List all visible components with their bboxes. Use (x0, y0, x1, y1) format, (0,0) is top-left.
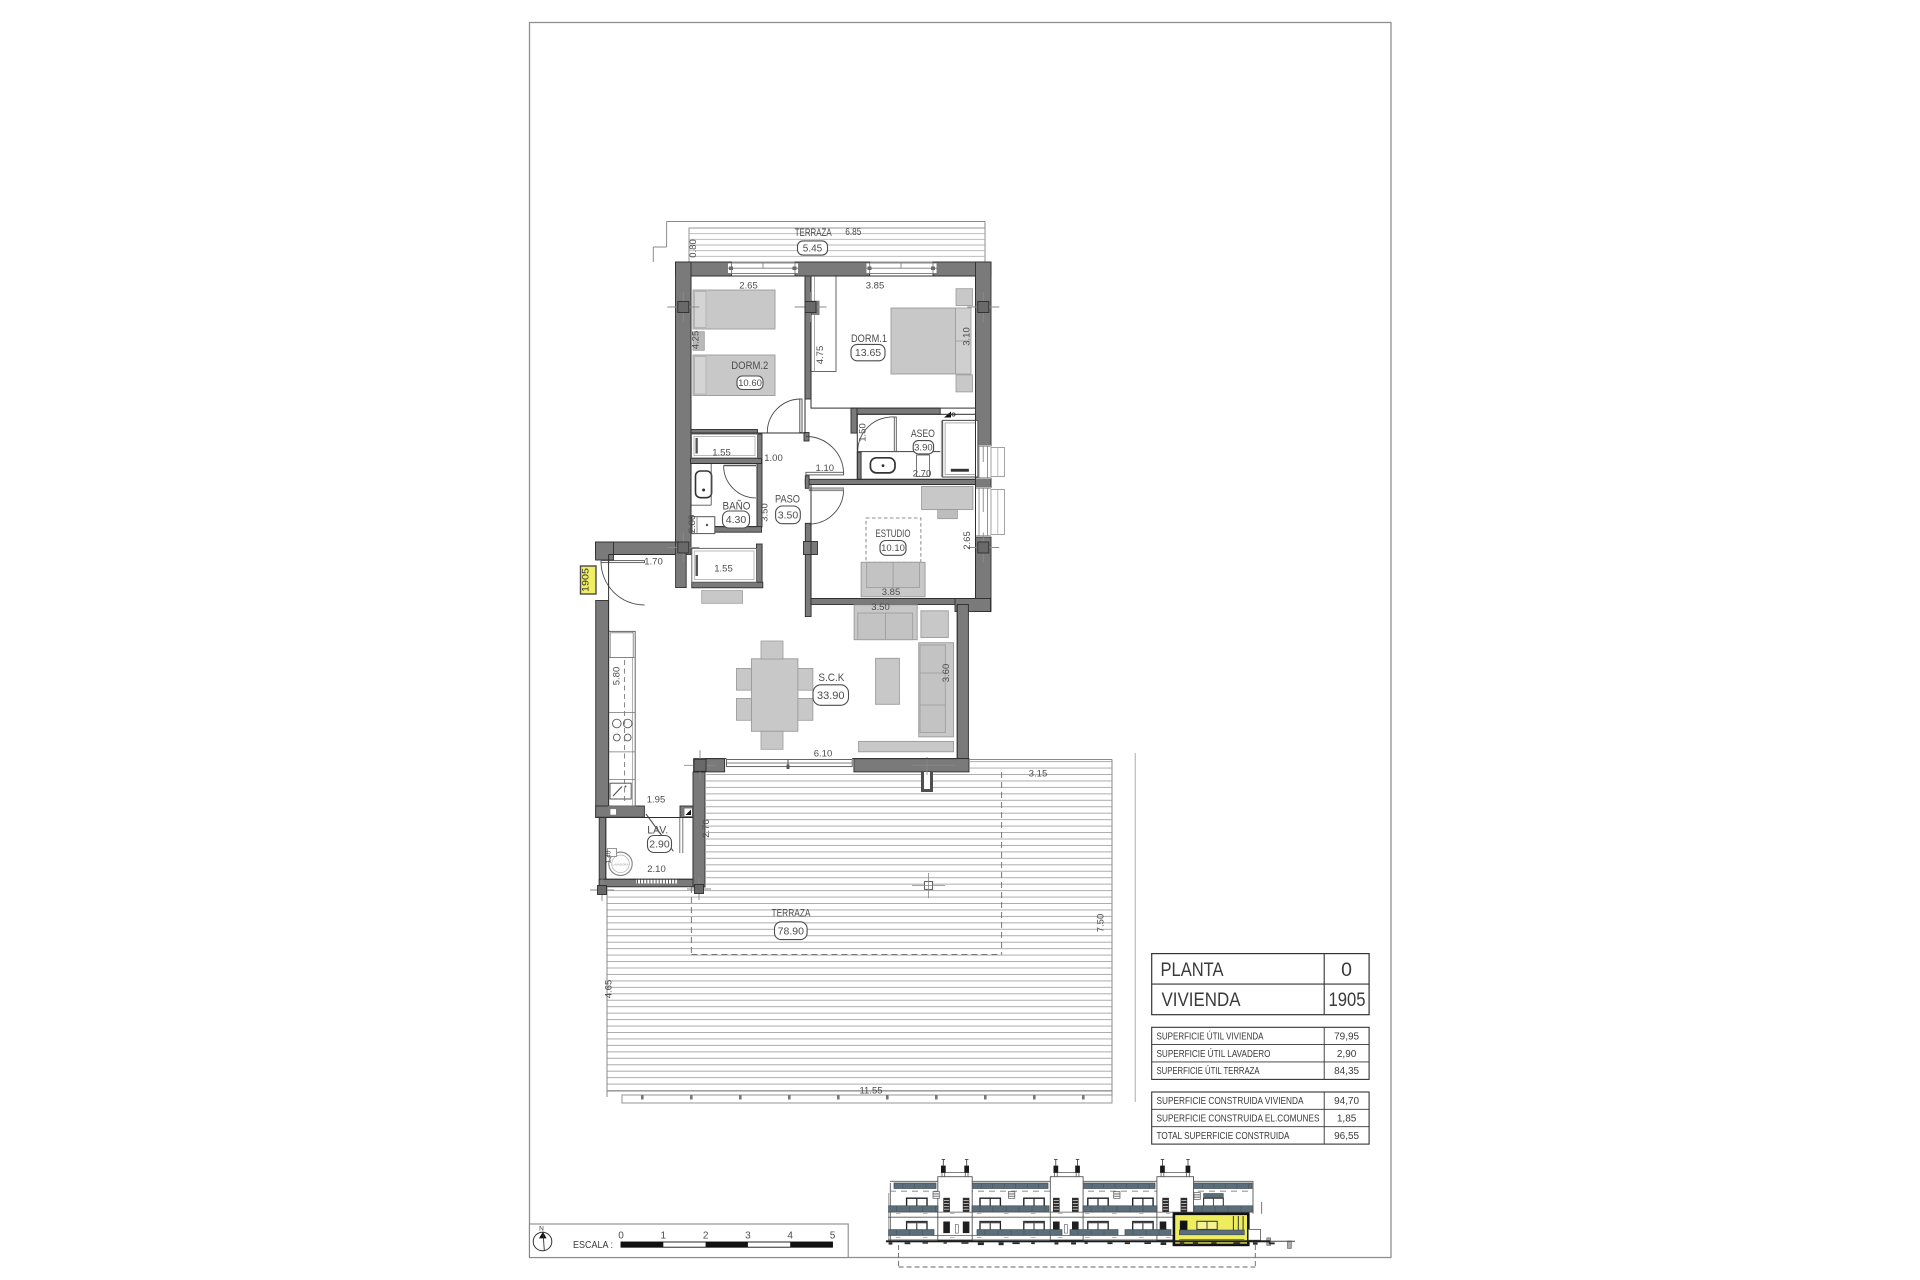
svg-text:ESTUDIO: ESTUDIO (876, 528, 911, 540)
svg-text:2.65: 2.65 (962, 531, 973, 550)
svg-text:1.55: 1.55 (712, 448, 731, 459)
svg-text:1.50: 1.50 (858, 423, 869, 442)
svg-text:SUPERFICIE CONSTRUIDA VIVIENDA: SUPERFICIE CONSTRUIDA VIVIENDA (1157, 1096, 1304, 1107)
svg-text:10.10: 10.10 (881, 543, 905, 554)
svg-text:ASEO: ASEO (911, 428, 935, 440)
svg-text:33.90: 33.90 (817, 690, 845, 702)
svg-text:TERRAZA: TERRAZA (772, 908, 811, 920)
svg-text:3.15: 3.15 (1029, 769, 1048, 780)
svg-text:N: N (539, 1226, 544, 1233)
svg-text:1.95: 1.95 (647, 795, 666, 806)
svg-text:3.90: 3.90 (914, 442, 933, 453)
svg-text:2.80: 2.80 (687, 515, 698, 534)
svg-text:DORM.1: DORM.1 (851, 333, 887, 345)
svg-text:TOTAL SUPERFICIE CONSTRUIDA: TOTAL SUPERFICIE CONSTRUIDA (1157, 1131, 1290, 1142)
svg-text:1.00: 1.00 (764, 453, 783, 464)
svg-text:10.60: 10.60 (738, 378, 762, 389)
svg-text:3.60: 3.60 (941, 664, 952, 683)
svg-text:13.65: 13.65 (855, 347, 881, 359)
svg-text:5: 5 (830, 1231, 836, 1242)
svg-text:VIVIENDA: VIVIENDA (1162, 989, 1241, 1011)
svg-text:5.80: 5.80 (612, 667, 623, 686)
svg-text:2,90: 2,90 (1337, 1049, 1357, 1060)
svg-text:3.10: 3.10 (961, 327, 972, 346)
svg-text:3.85: 3.85 (882, 587, 901, 598)
svg-text:S.C.K: S.C.K (818, 672, 845, 684)
svg-text:3.50: 3.50 (759, 503, 770, 522)
svg-text:3.50: 3.50 (778, 509, 799, 521)
svg-text:ESCALA :: ESCALA : (573, 1240, 613, 1251)
svg-text:1.55: 1.55 (714, 564, 733, 575)
svg-text:2.65: 2.65 (739, 281, 758, 292)
svg-text:LAVADORA: LAVADORA (613, 863, 629, 867)
svg-text:SUPERFICIE ÚTIL TERRAZA: SUPERFICIE ÚTIL TERRAZA (1157, 1064, 1260, 1077)
svg-text:2.70: 2.70 (701, 819, 712, 838)
svg-text:PASO: PASO (775, 494, 800, 506)
svg-text:1: 1 (661, 1231, 667, 1242)
svg-text:1,85: 1,85 (1337, 1114, 1357, 1125)
svg-text:0.80: 0.80 (688, 239, 699, 258)
svg-text:2.90: 2.90 (649, 839, 670, 851)
svg-text:78.90: 78.90 (778, 925, 804, 937)
svg-text:2.10: 2.10 (647, 864, 666, 875)
svg-text:79,95: 79,95 (1334, 1032, 1359, 1043)
svg-text:2: 2 (703, 1231, 709, 1242)
svg-text:6.10: 6.10 (814, 749, 833, 760)
svg-text:4.30: 4.30 (726, 514, 747, 526)
svg-text:0: 0 (618, 1231, 624, 1242)
svg-text:SUPERFICIE ÚTIL VIVIENDA: SUPERFICIE ÚTIL VIVIENDA (1157, 1030, 1264, 1043)
svg-text:5.45: 5.45 (803, 243, 823, 254)
svg-text:LAV.: LAV. (647, 825, 668, 837)
svg-text:4.75: 4.75 (815, 346, 826, 365)
svg-text:96,55: 96,55 (1334, 1131, 1359, 1142)
svg-text:3.50: 3.50 (871, 602, 890, 613)
svg-text:SUPERFICIE ÚTIL LAVADERO: SUPERFICIE ÚTIL LAVADERO (1157, 1047, 1271, 1060)
svg-text:6.85: 6.85 (845, 227, 861, 238)
svg-text:7.50: 7.50 (1096, 914, 1107, 933)
svg-text:1905: 1905 (580, 568, 591, 592)
svg-text:TERRAZA: TERRAZA (795, 227, 832, 239)
svg-text:0: 0 (1341, 959, 1352, 981)
svg-text:DORM.2: DORM.2 (731, 360, 768, 372)
svg-text:1.40: 1.40 (606, 850, 613, 863)
svg-text:4: 4 (787, 1231, 793, 1242)
svg-text:94,70: 94,70 (1334, 1096, 1359, 1107)
svg-text:1.10: 1.10 (816, 463, 835, 474)
svg-text:SUPERFICIE CONSTRUIDA EL.COMUN: SUPERFICIE CONSTRUIDA EL.COMUNES (1157, 1114, 1320, 1125)
svg-text:3.85: 3.85 (866, 281, 885, 292)
svg-text:84,35: 84,35 (1334, 1066, 1359, 1077)
svg-text:PLANTA: PLANTA (1161, 959, 1224, 981)
svg-text:11.55: 11.55 (859, 1086, 882, 1097)
svg-text:4.65: 4.65 (604, 980, 615, 999)
svg-text:2.70: 2.70 (913, 469, 932, 480)
svg-text:1.70: 1.70 (644, 557, 663, 568)
svg-text:1905: 1905 (1329, 989, 1366, 1011)
svg-text:3: 3 (745, 1231, 751, 1242)
svg-text:4.25: 4.25 (690, 331, 701, 350)
